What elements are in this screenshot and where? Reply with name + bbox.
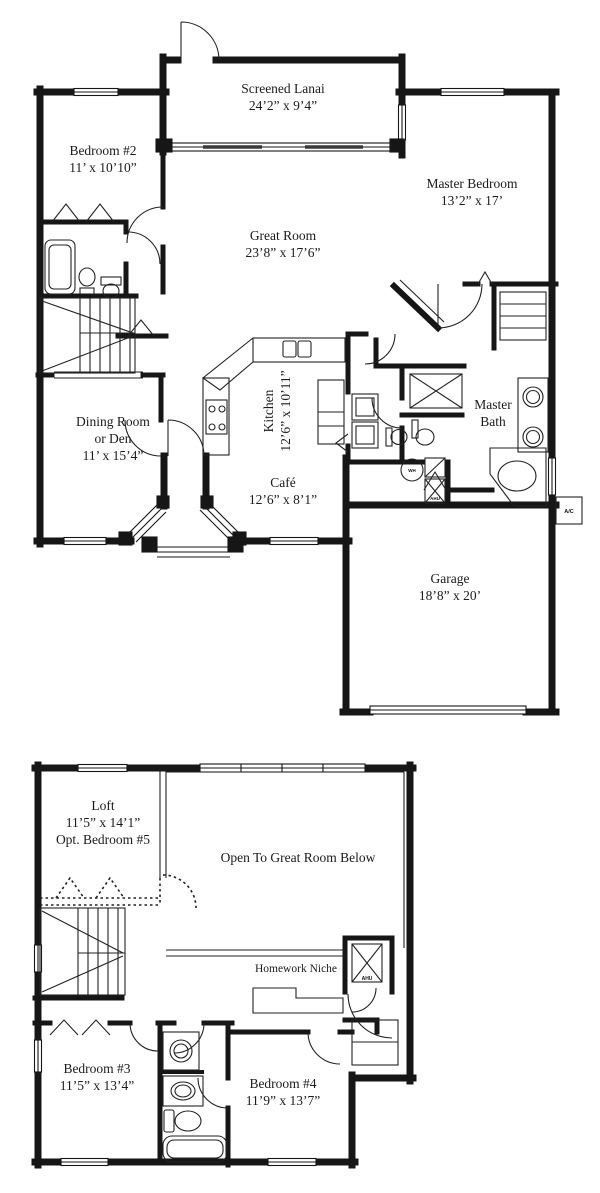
room-label-bedroom3: Bedroom #3 11’5” x 13’4” [27, 1060, 167, 1094]
bedroom3-dims: 11’5” x 13’4” [27, 1077, 167, 1094]
room-label-screened-lanai: Screened Lanai 24’2” x 9’4” [183, 80, 383, 114]
bedroom4-name: Bedroom #4 [213, 1075, 353, 1092]
room-label-great-room: Great Room 23’8” x 17’6” [203, 227, 363, 261]
loft-option: Opt. Bedroom #5 [33, 831, 173, 848]
loft-name: Loft [33, 797, 173, 814]
laundry-powder-fixtures [352, 394, 407, 448]
loft-dims: 11’5” x 14’1” [33, 814, 173, 831]
homework-niche-text: Homework Niche [236, 962, 356, 977]
garage-name: Garage [370, 570, 530, 587]
screened-lanai-name: Screened Lanai [183, 80, 383, 97]
bedroom4-dims: 11’9” x 13’7” [213, 1092, 353, 1109]
label-open-to-great-room-below: Open To Great Room Below [173, 849, 423, 866]
floor2-ahu-label: AHU [362, 976, 373, 982]
garage-door [370, 706, 526, 714]
dining-dims: 11’ x 15’4” [43, 447, 183, 464]
room-label-bedroom2: Bedroom #2 11’ x 10’10” [33, 142, 173, 176]
room-label-master-bath: Master Bath [453, 396, 533, 430]
ac-label: A/C [564, 509, 574, 515]
label-homework-niche: Homework Niche [236, 962, 356, 977]
room-label-bedroom4: Bedroom #4 11’9” x 13’7” [213, 1075, 353, 1109]
room-label-garage: Garage 18’8” x 20’ [370, 570, 530, 604]
bedroom2-name: Bedroom #2 [33, 142, 173, 159]
garage-dims: 18’8” x 20’ [370, 587, 530, 604]
floor2-stairs [40, 908, 125, 995]
master-bath-line1: Master [453, 396, 533, 413]
master-bedroom-name: Master Bedroom [392, 175, 552, 192]
room-label-dining: Dining Room or Den 11’ x 15’4” [43, 413, 183, 464]
room-label-kitchen: Kitchen 12’6” x 10’11” [260, 336, 296, 486]
bedroom2-dims: 11’ x 10’10” [33, 159, 173, 176]
floor1-ahu-label: AHU [430, 496, 440, 501]
room-label-loft: Loft 11’5” x 14’1” Opt. Bedroom #5 [33, 797, 173, 848]
dining-name-line1: Dining Room [43, 413, 183, 430]
great-room-dims: 23’8” x 17’6” [203, 244, 363, 261]
homework-niche-desk [253, 988, 343, 1013]
master-bath-line2: Bath [453, 413, 533, 430]
bedroom3-name: Bedroom #3 [27, 1060, 167, 1077]
room-label-master-bedroom: Master Bedroom 13’2” x 17’ [392, 175, 552, 209]
screened-lanai-dims: 24’2” x 9’4” [183, 97, 383, 114]
lanai-colonnade [156, 139, 404, 152]
kitchen-dims: 12’6” x 10’11” [277, 336, 294, 486]
floor-plan-page: WH AHU A/C [0, 0, 600, 1193]
great-room-name: Great Room [203, 227, 363, 244]
water-heater-label: WH [408, 468, 416, 473]
open-below-text: Open To Great Room Below [173, 849, 423, 866]
bath1-fixtures [45, 240, 121, 298]
cafe-dims: 12’6” x 8’1” [213, 491, 353, 508]
optional-walls-dashed [40, 875, 196, 908]
kitchen-name: Kitchen [260, 336, 277, 486]
cafe-name: Café [213, 474, 353, 491]
master-bedroom-dims: 13’2” x 17’ [392, 192, 552, 209]
dining-name-line2: or Den [43, 430, 183, 447]
room-label-cafe: Café 12’6” x 8’1” [213, 474, 353, 508]
